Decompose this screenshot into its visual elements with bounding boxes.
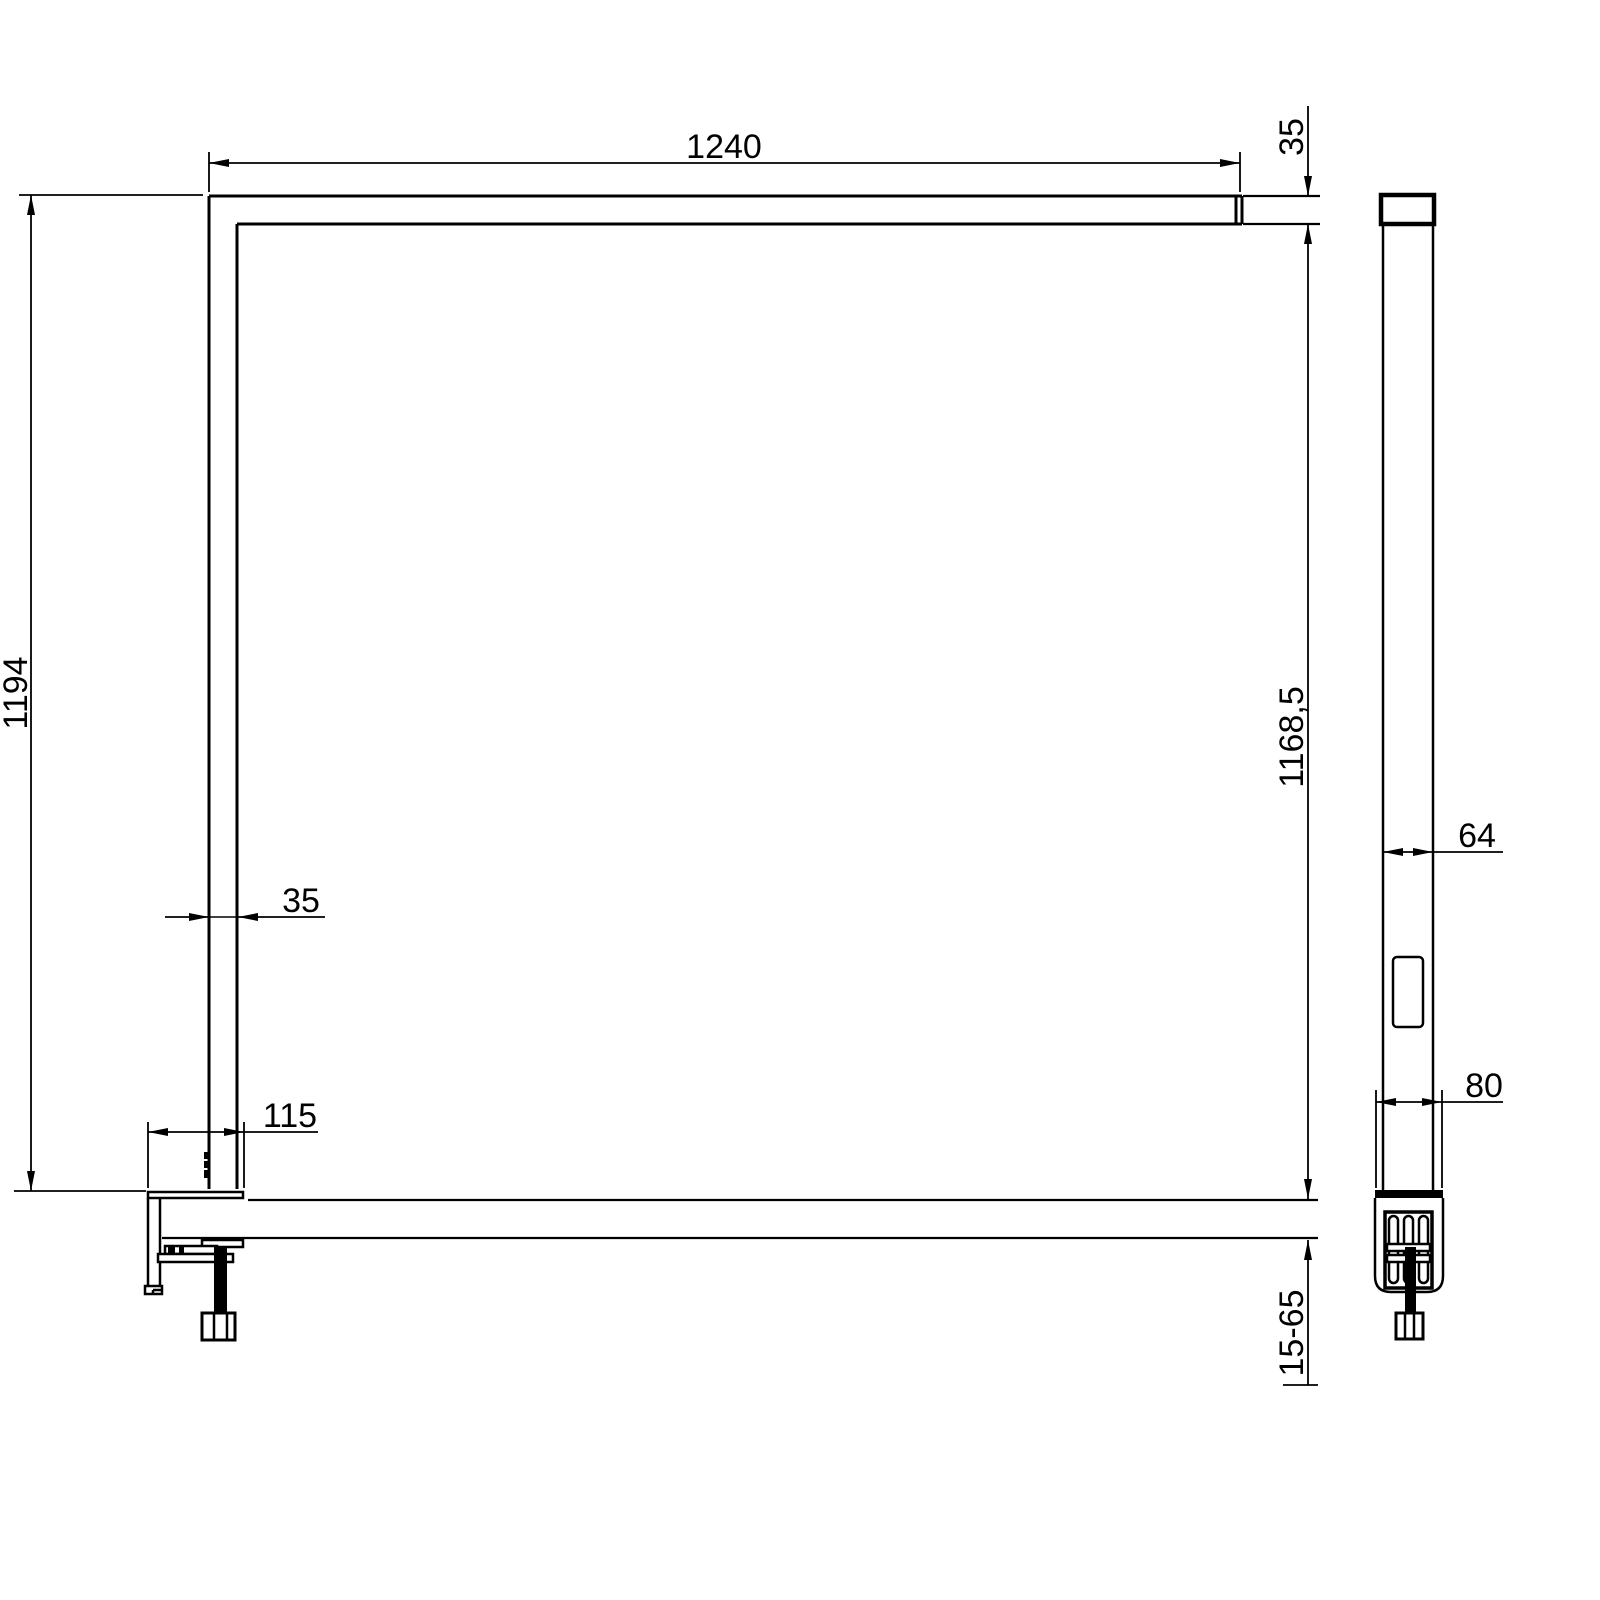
clamp-knob-front xyxy=(202,1313,235,1340)
dim-under-bar-height: 1168,5 xyxy=(1273,224,1311,1199)
dim-label-clamp-width: 80 xyxy=(1465,1067,1503,1105)
dim-head-thickness: 35 xyxy=(1243,106,1320,224)
dim-post-width: 35 xyxy=(165,882,325,920)
drawing-svg: 1240 35 1168,5 15-65 1194 xyxy=(0,0,1600,1600)
technical-drawing-canvas: 1240 35 1168,5 15-65 1194 xyxy=(0,0,1600,1600)
clamp-jaw-front xyxy=(158,1240,243,1340)
dim-label-total-height: 1194 xyxy=(0,656,35,729)
clamp-screw-side xyxy=(1405,1247,1416,1313)
side-head-cap xyxy=(1381,195,1434,224)
front-view xyxy=(145,196,1318,1340)
lamp-head-bar xyxy=(209,196,1242,224)
dim-clamp-depth: 115 xyxy=(148,1097,318,1188)
side-post xyxy=(1383,224,1433,1190)
clamp-screw-front xyxy=(214,1247,227,1313)
dim-post-depth: 64 xyxy=(1383,817,1503,855)
housing-top-band xyxy=(1375,1190,1443,1198)
post-detail-marks xyxy=(204,1152,209,1178)
desk-surface xyxy=(162,1200,1318,1238)
side-switch-detail xyxy=(1393,957,1423,1027)
dim-label-post-depth: 64 xyxy=(1458,817,1496,855)
dim-bar-length: 1240 xyxy=(209,128,1240,192)
dim-label-clamp-range: 15-65 xyxy=(1273,1290,1311,1377)
dim-label-post-width: 35 xyxy=(282,882,320,920)
dim-clamp-width: 80 xyxy=(1376,1067,1503,1188)
dim-label-head-thickness: 35 xyxy=(1273,118,1311,156)
dim-total-height: 1194 xyxy=(0,195,203,1191)
side-view xyxy=(1375,195,1443,1339)
clamp-housing-side xyxy=(1375,1190,1443,1339)
clamp-knob-side xyxy=(1396,1313,1423,1339)
dim-clamp-range: 15-65 xyxy=(1273,1240,1318,1385)
bracket-top-plate xyxy=(148,1192,243,1198)
lamp-post xyxy=(209,196,237,1189)
dim-label-bar-length: 1240 xyxy=(686,128,762,166)
dim-label-under-bar-height: 1168,5 xyxy=(1273,686,1311,787)
dim-label-clamp-depth: 115 xyxy=(263,1097,317,1135)
